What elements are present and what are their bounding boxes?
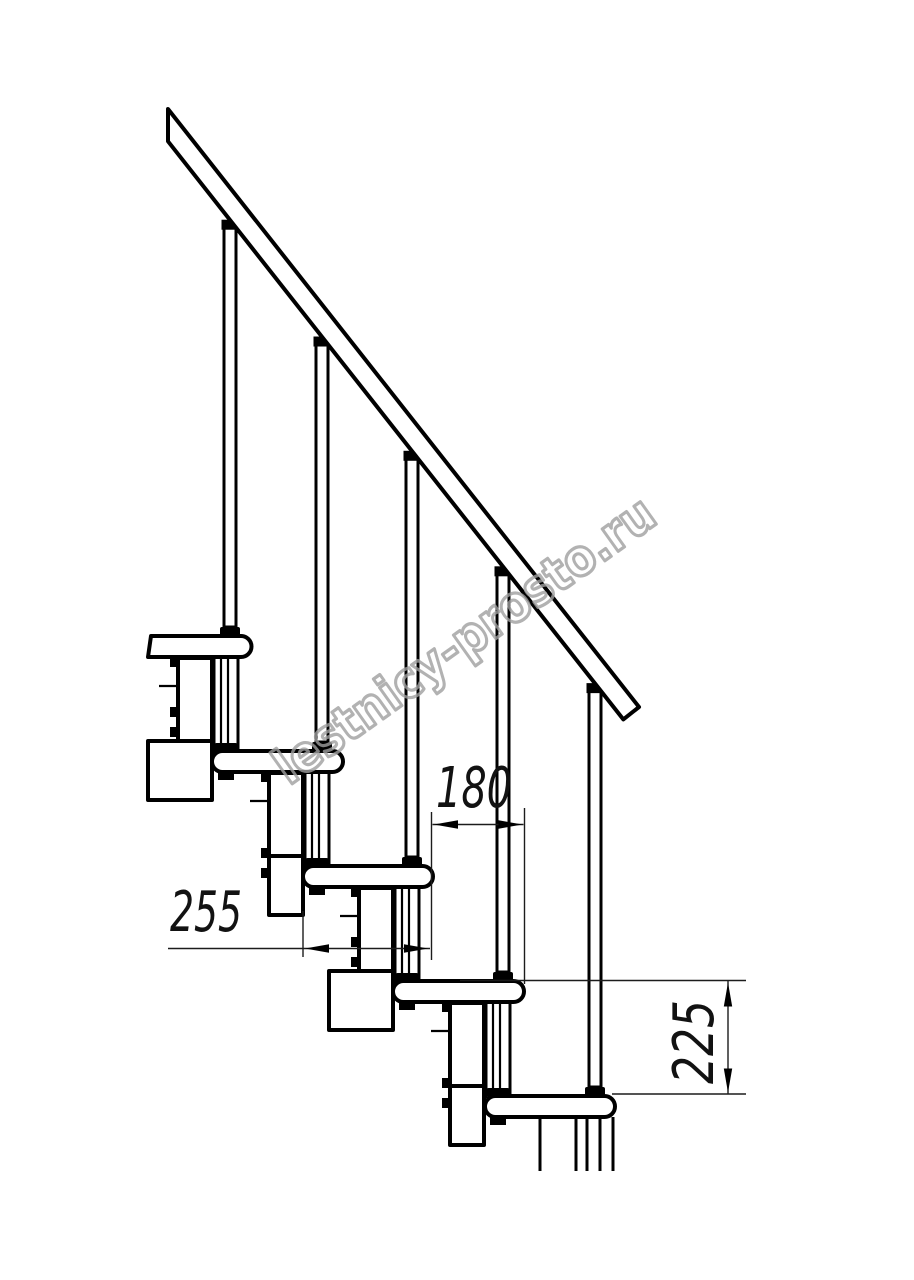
baluster-foot [402,857,422,868]
baluster-rod [589,691,601,1087]
bolt-tab [442,1003,451,1012]
bolt-tab [261,773,270,782]
bolt-tab [442,1098,451,1108]
dimension-label-180: 180 [436,756,512,821]
bolt-tab [261,868,270,878]
bolt-tab [442,1078,451,1088]
bolt-tab [170,727,179,737]
module-lower-box [269,856,303,915]
dimension-label-225: 225 [662,1000,727,1084]
rod-nut-top [396,973,418,982]
tread [303,866,433,887]
bolt-tab [261,848,270,858]
module-upper-box [178,658,212,741]
bolt-tab [170,707,179,717]
rod-nut-top [487,1088,509,1097]
dimension-arrow [404,944,428,952]
module-lower-box [148,741,212,800]
tread [148,636,252,657]
dimension-arrow [305,944,329,952]
bolt-tab [351,888,360,897]
dimension-label-255: 255 [170,880,242,945]
technical-drawing-page: 255 180 225 lestnicy-prosto.ru [0,0,914,1280]
bolt-tab [351,937,360,947]
module-lower-box [329,971,393,1030]
baluster-foot [220,627,240,638]
module-upper-box [359,888,393,971]
baluster-foot [585,1087,605,1098]
rod-bracket-bottom [399,1001,415,1010]
baluster-rod [224,228,236,627]
rod-nut-top [215,743,237,752]
baluster-rod [316,345,328,742]
tread [393,981,524,1002]
rod-bracket-bottom [309,886,325,895]
rod-bracket-bottom [218,771,234,780]
module-lower-box [450,1086,484,1145]
bolt-tab [351,957,360,967]
baluster-foot [493,972,513,983]
rod-nut-top [306,858,328,867]
dimension-arrow [434,820,458,828]
rod-bracket-bottom [490,1116,506,1125]
module-upper-box [450,1003,484,1086]
bolt-tab [170,658,179,667]
tread [485,1096,615,1117]
staircase-drawing: 255 180 225 lestnicy-prosto.ru [0,0,914,1280]
